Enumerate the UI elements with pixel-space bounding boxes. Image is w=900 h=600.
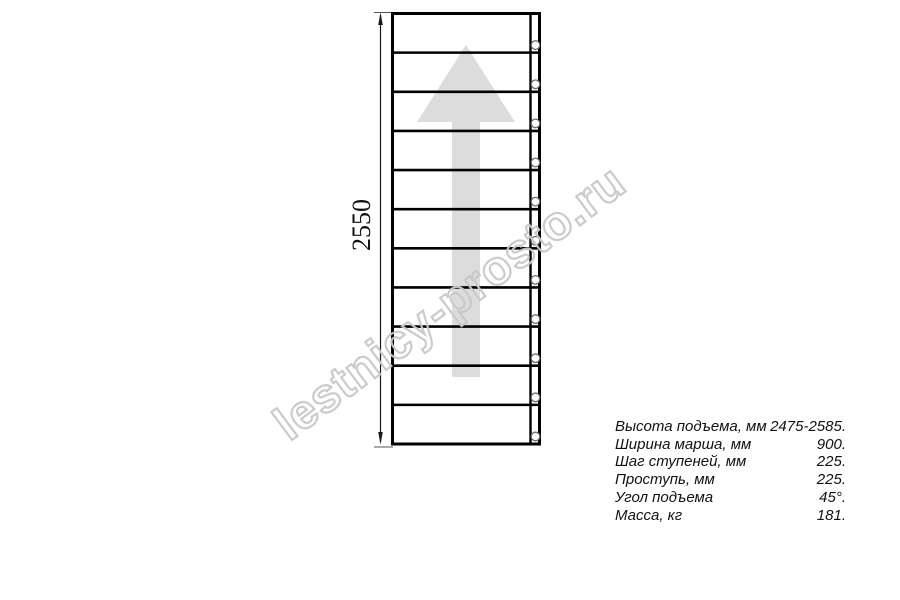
spec-label: Проступь, мм	[615, 471, 715, 489]
fastener-hole	[531, 354, 540, 363]
spec-label: Масса, кг	[615, 507, 682, 525]
spec-label: Шаг ступеней, мм	[615, 453, 746, 471]
spec-label: Угол подъема	[615, 489, 713, 507]
spec-value: 45°.	[819, 489, 846, 507]
spec-row: Масса, кг181.	[615, 507, 846, 525]
spec-label: Высота подъема, мм	[615, 418, 767, 436]
fastener-hole	[531, 237, 540, 246]
fastener-hole	[531, 41, 540, 50]
spec-row: Шаг ступеней, мм225.	[615, 453, 846, 471]
spec-row: Высота подъема, мм2475-2585.	[615, 418, 846, 436]
fastener-hole	[531, 80, 540, 89]
dimension-label: 2550	[348, 175, 376, 275]
drawing-canvas: 2550 lestnicy-prosto.ru Высота подъема, …	[0, 0, 900, 600]
fastener-hole	[531, 393, 540, 402]
dimension-arrowhead-up	[378, 13, 383, 26]
fastener-hole	[531, 276, 540, 285]
spec-row: Проступь, мм225.	[615, 471, 846, 489]
fastener-hole	[531, 119, 540, 128]
fastener-hole	[531, 315, 540, 324]
spec-value: 900.	[817, 436, 846, 454]
spec-row: Ширина марша, мм900.	[615, 436, 846, 454]
dimension-arrowhead-down	[378, 432, 383, 445]
spec-label: Ширина марша, мм	[615, 436, 751, 454]
spec-value: 2475-2585.	[770, 418, 846, 436]
spec-value: 225.	[817, 453, 846, 471]
specs-table: Высота подъема, мм2475-2585.Ширина марша…	[615, 418, 846, 524]
spec-row: Угол подъема45°.	[615, 489, 846, 507]
fastener-hole	[531, 432, 540, 441]
spec-value: 225.	[817, 471, 846, 489]
spec-value: 181.	[817, 507, 846, 525]
fastener-hole	[531, 197, 540, 206]
fastener-hole	[531, 158, 540, 167]
